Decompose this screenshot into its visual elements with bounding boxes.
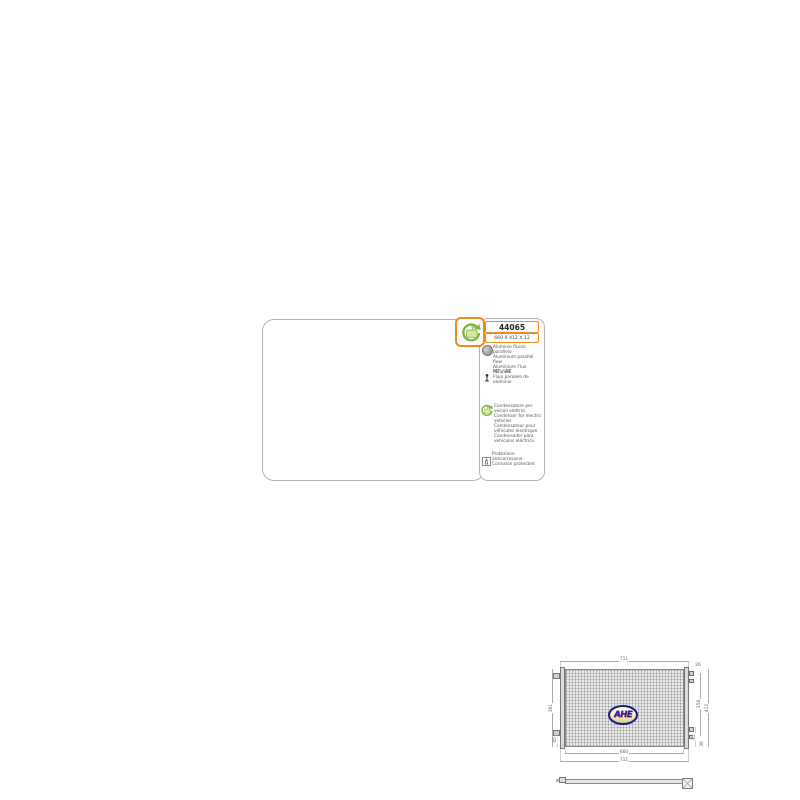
bracket-top-left bbox=[553, 673, 560, 679]
aluminum-disc-icon bbox=[482, 345, 493, 356]
dim-label-overall-width: 711 bbox=[619, 759, 629, 763]
dim-label-right-inner: 358 bbox=[698, 699, 702, 709]
dim-label-right-offset-a: 85 bbox=[693, 733, 697, 741]
drier-tube bbox=[565, 779, 686, 784]
dim-label-port: 26 bbox=[694, 664, 702, 668]
ahe-logo-text: AHE bbox=[614, 710, 632, 720]
electric-vehicle-small-icon bbox=[480, 402, 493, 421]
part-number: 44065 bbox=[499, 323, 525, 332]
electric-vehicle-icon bbox=[460, 322, 481, 343]
size-box: 660 X 412 X 12 bbox=[485, 333, 539, 343]
part-number-box: 44065 bbox=[485, 321, 539, 333]
transmission-spec-text: MT / AT bbox=[493, 370, 541, 375]
dim-label-top-width: 711 bbox=[619, 658, 629, 662]
spec-line: Aluminium parallel flow bbox=[493, 355, 541, 365]
ahe-logo: AHE bbox=[608, 705, 638, 725]
tube-flange bbox=[682, 774, 693, 785]
drawing-panel: 711 361 45 358 412 85 36 26 660 bbox=[262, 319, 485, 481]
bracket-bottom-left bbox=[553, 730, 560, 736]
corrosion-protection-icon bbox=[482, 451, 491, 470]
port-bottom-a bbox=[689, 727, 694, 732]
electric-vehicle-badge bbox=[455, 317, 485, 347]
electric-spec-text: Condensatore per veicoli elettrici Conde… bbox=[494, 404, 542, 444]
spec-line: Aluminio flusso parallelo bbox=[493, 345, 541, 355]
spec-line: vehículos eléctrico bbox=[494, 439, 542, 444]
left-tank bbox=[560, 667, 565, 749]
dim-label-right-offset-b: 36 bbox=[701, 740, 705, 748]
size-value: 660 X 412 X 12 bbox=[494, 336, 530, 341]
dim-label-core-width: 660 bbox=[619, 751, 629, 755]
spec-line: Flujo paralelo de aluminio bbox=[493, 375, 541, 385]
dim-label-right-outer: 412 bbox=[706, 703, 710, 713]
gear-shift-icon bbox=[484, 368, 490, 387]
tube-connector bbox=[559, 777, 566, 783]
port-top-a bbox=[689, 671, 694, 676]
spec-line: Corrosion protected bbox=[492, 462, 540, 467]
flange-x-icon bbox=[682, 778, 693, 789]
dim-label-left-offset: 45 bbox=[554, 736, 558, 744]
corrosion-spec-text: Protezione anticorrosione Corrosion prot… bbox=[492, 452, 540, 467]
material-spec-text: Aluminio flusso parallelo Aluminium para… bbox=[493, 345, 541, 385]
port-top-b bbox=[689, 679, 694, 683]
tube-nub bbox=[556, 779, 559, 782]
spec-line: Protezione anticorrosione bbox=[492, 452, 540, 462]
datasheet-page: 711 361 45 358 412 85 36 26 660 bbox=[0, 0, 800, 800]
dim-label-left-height: 361 bbox=[550, 703, 554, 713]
